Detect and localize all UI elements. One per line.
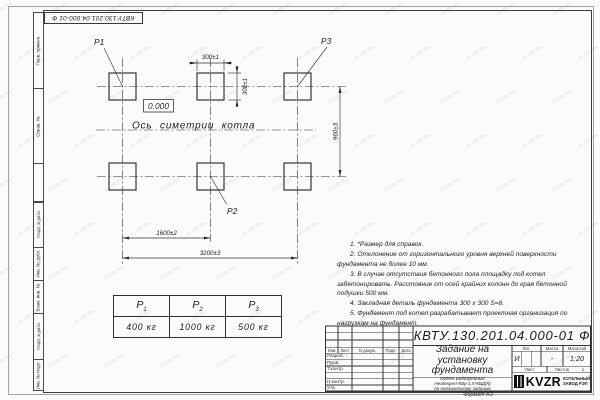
margin-cell-sprav-n: Справ. № [33,88,44,164]
scale-value: 1:20 [563,351,591,366]
doc-number-rotated: КВТУ.130.201.04.000-01 Ф [52,14,134,21]
note-2: 2. Отклонение от горизонтального уровня … [337,250,590,270]
company-line-2: ЗАВОД РЭП [563,382,590,387]
col-header-ndokum: N докум. [352,347,383,353]
format-label: Формат А3 [418,392,538,398]
margin-label: Взам. инв. № [36,283,41,311]
margin-label: Перв. примен. [36,36,41,66]
label-p3: Р3 [321,36,332,46]
company-name: КОТЕЛЬНЫЙ ЗАВОД РЭП [563,377,590,387]
margin-cell-vzam-inv: Взам. инв. № [33,280,44,314]
notes-block: 1. *Размер для справок. 2. Отклонение от… [337,240,590,329]
mass-value: - [541,351,563,366]
symmetry-axis-label: Ось симетрии котла [132,121,255,132]
drawing-sheet: KVZR.RUKVZR.RUKVZR.RUKVZR.RUKVZR.RUKVZR.… [0,0,600,400]
col-header-list: Лист [338,347,352,353]
margin-cell-inv-podl: Инв. № подл. [33,359,44,391]
margin-cell-podp-data-2: Подп. и дата [33,313,44,360]
note-3: 3. В случае отсутствия бетонного пола пл… [337,270,590,300]
margin-cell-empty [33,163,44,202]
note-1: 1. *Размер для справок. [337,240,590,250]
lit-value: И [512,351,522,366]
left-margin-strip: Перв. примен. Справ. № Подп. и дата Инв.… [33,12,44,391]
margin-cell-inv-dubl: Инв. № дубл. [33,247,44,281]
elevation-value: 0.000 [148,101,169,111]
load-header-p3: Р3 [226,296,282,317]
dim-300-vertical: 300±1 [242,78,249,95]
margin-cell-perv-primen: Перв. примен. [33,12,44,89]
margin-label: Справ. № [36,116,41,136]
sheets-value: 1 [577,366,589,372]
dim-300-horizontal: 300±1 [202,54,219,61]
dim-960: 960±3 [333,122,340,140]
dim-1600: 1600±2 [156,230,177,237]
load-value-p2: 1000 кг [170,317,226,338]
centerlines [96,58,346,264]
load-header-p2: Р2 [170,296,226,317]
sheet-label: Лист [512,366,547,372]
load-header-p1: Р1 [114,296,170,317]
kvzr-emblem-icon [514,375,524,388]
margin-label: Подп. и дата [36,323,41,350]
kvzr-logo: KVZR КОТЕЛЬНЫЙ ЗАВОД РЭП [513,373,591,392]
margin-label: Подп. и дата [36,211,41,238]
label-p1: Р1 [94,37,104,47]
margin-cell-podp-data-1: Подп. и дата [33,202,44,248]
note-4: 4. Закладная деталь фундамента 300 х 300… [337,299,590,309]
dim-3200: 3200±3 [200,250,221,257]
col-header-data: Дата [399,347,413,353]
drawing-subtitle: Котел Водогрейный Heatexpert-КВр-1,5-КБД… [413,377,512,392]
label-p2: Р2 [227,206,238,216]
load-table: Р1 Р2 Р3 400 кг 1000 кг 500 кг [113,295,282,338]
doc-number-rotated-box: КВТУ.130.201.04.000-01 Ф [44,12,143,25]
col-header-podp: Подп. [383,347,399,353]
load-value-p1: 400 кг [114,317,170,338]
row-label-utv: Утв. [327,385,352,391]
dimension-lines [104,47,340,258]
load-table-header-row: Р1 Р2 Р3 [114,296,282,317]
load-value-p3: 500 кг [226,317,282,338]
subtitle-line-3: по техническому заданию [434,387,491,392]
load-table-value-row: 400 кг 1000 кг 500 кг [114,317,282,338]
foundation-pads [109,73,311,190]
drawing-title: Задание на установку фундамента [413,345,512,377]
col-header-izm: Изм [325,347,338,353]
margin-label: Инв. № подл. [36,361,41,389]
kvzr-logo-text: KVZR [526,375,561,389]
margin-label: Инв. № дубл. [36,250,41,278]
doc-number: КВТУ.130.201.04.000-01 Ф [413,325,591,345]
title-block: Изм Лист N докум. Подп. Дата Разраб. Про… [325,325,591,392]
sheets-label: Листов [547,366,577,372]
